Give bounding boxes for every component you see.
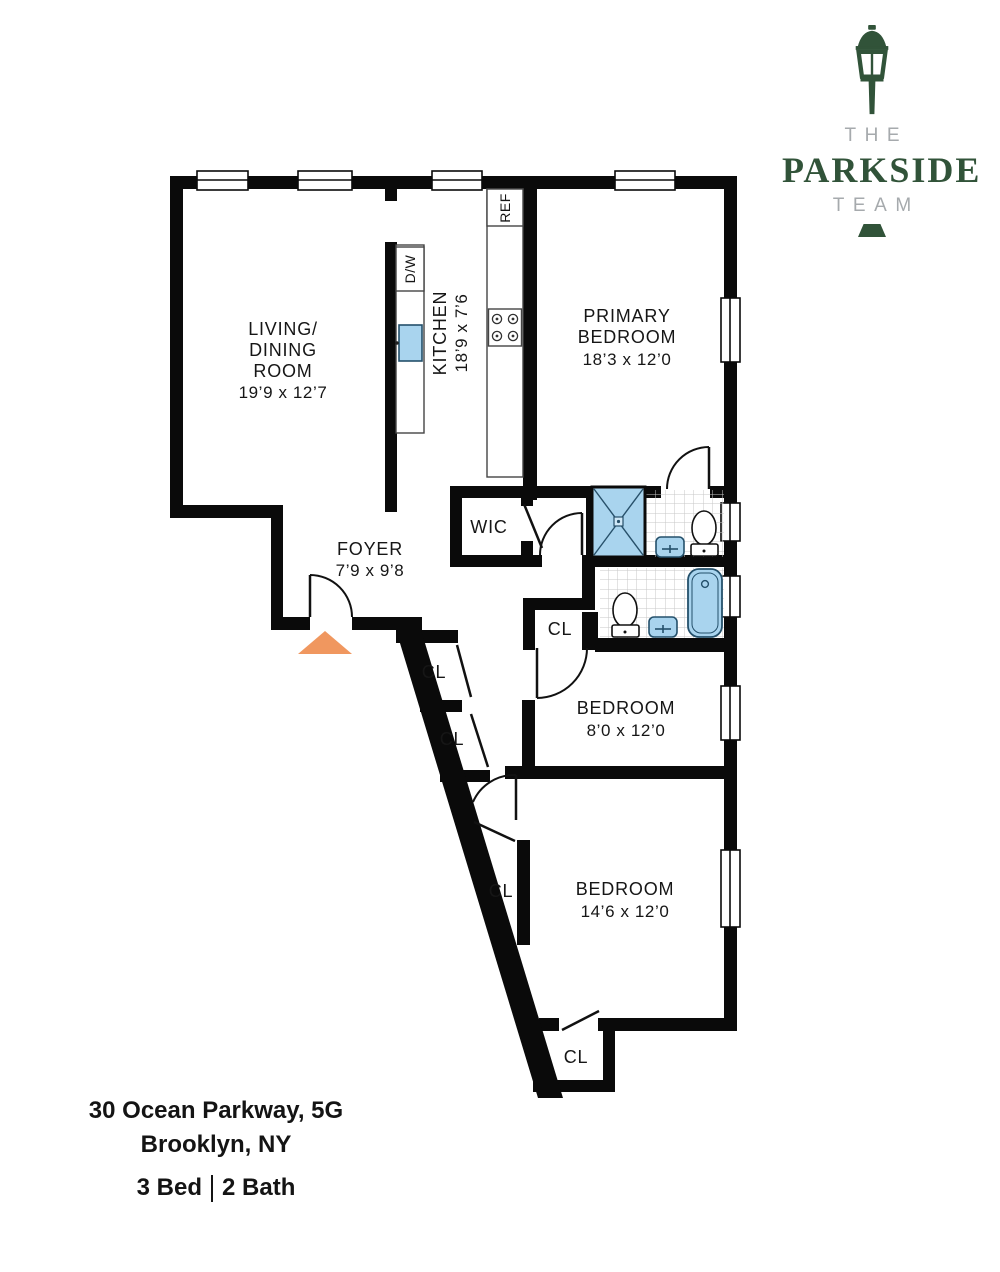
floorplan-page: LIVING/ DINING ROOM 19’9 x 12’7 KITCHEN … — [0, 0, 1000, 1272]
room-kitchen: KITCHEN 18’9 x 7’6 — [430, 291, 471, 376]
room-label: LIVING/ — [248, 319, 318, 339]
sink — [649, 617, 677, 637]
diagonal-wall — [396, 630, 563, 1098]
bed-bath-summary: 3 Bed 2 Bath — [137, 1174, 296, 1202]
room-bedroom-bottom: BEDROOM 14’6 x 12’0 — [576, 879, 675, 921]
logo-base-icon — [858, 224, 886, 237]
toilet — [691, 511, 718, 556]
room-dims: 7’9 x 9’8 — [336, 561, 405, 580]
closet-label: CL — [489, 881, 514, 901]
window — [721, 298, 740, 362]
bed-bath-divider-icon — [211, 1175, 213, 1202]
lamppost-icon — [840, 24, 904, 116]
window — [615, 171, 675, 190]
window — [721, 686, 740, 740]
room-label: DINING — [249, 340, 317, 360]
logo-brand-top: THE — [782, 125, 962, 147]
room-dims: 14’6 x 12’0 — [581, 902, 670, 921]
stove — [489, 309, 522, 346]
window — [298, 171, 352, 190]
closet-door — [562, 1011, 599, 1030]
bed-count: 3 Bed — [137, 1174, 202, 1202]
closet-door — [457, 645, 471, 697]
toilet — [612, 593, 639, 637]
entry-arrow — [298, 631, 352, 654]
bedroom-mid-door — [537, 648, 587, 698]
bathroom-top — [592, 487, 724, 557]
bathtub — [688, 569, 722, 637]
parkside-team-logo: THE PARKSIDE TEAM — [782, 24, 962, 237]
entry-door — [310, 575, 352, 617]
room-label: BEDROOM — [578, 327, 677, 347]
room-label: WIC — [470, 517, 507, 537]
window — [721, 850, 740, 927]
room-label: ROOM — [253, 361, 312, 381]
room-dims: 19’9 x 12’7 — [239, 383, 328, 402]
closet-label: CL — [440, 729, 465, 749]
bath-count: 2 Bath — [222, 1174, 295, 1202]
room-label: PRIMARY — [583, 306, 670, 326]
hall-door — [540, 513, 582, 555]
address-line2: Brooklyn, NY — [80, 1128, 352, 1162]
dishwasher-label: D/W — [402, 254, 418, 283]
window — [432, 171, 482, 190]
room-label: KITCHEN — [430, 291, 450, 376]
shower — [592, 487, 645, 557]
address-line1: 30 Ocean Parkway, 5G — [80, 1094, 352, 1128]
listing-info: 30 Ocean Parkway, 5G Brooklyn, NY 3 Bed … — [80, 1094, 352, 1202]
room-label: BEDROOM — [577, 698, 676, 718]
closet-label: CL — [564, 1047, 589, 1067]
bathroom-bottom — [600, 568, 724, 638]
closet-door — [471, 714, 488, 767]
room-living: LIVING/ DINING ROOM 19’9 x 12’7 — [239, 319, 328, 402]
room-dims: 8’0 x 12’0 — [587, 721, 666, 740]
kitchen-sink — [395, 325, 422, 361]
room-bedroom-mid: BEDROOM 8’0 x 12’0 — [577, 698, 676, 740]
room-wic: WIC — [470, 517, 507, 537]
sink — [656, 537, 684, 557]
primary-bath-door — [667, 447, 709, 489]
room-label: FOYER — [337, 539, 403, 559]
window — [197, 171, 248, 190]
closet-labels: CL CL CL CL CL — [422, 619, 589, 1067]
logo-brand-main: PARKSIDE — [782, 149, 962, 191]
room-dims: 18’9 x 7’6 — [452, 294, 471, 373]
logo-brand-bottom: TEAM — [782, 195, 962, 217]
room-foyer: FOYER 7’9 x 9’8 — [336, 539, 405, 580]
refrigerator-label: REF — [497, 193, 513, 223]
room-primary-bedroom: PRIMARY BEDROOM 18’3 x 12’0 — [578, 306, 677, 369]
room-dims: 18’3 x 12’0 — [583, 350, 672, 369]
closet-label: CL — [422, 662, 447, 682]
room-label: BEDROOM — [576, 879, 675, 899]
closet-label: CL — [548, 619, 573, 639]
